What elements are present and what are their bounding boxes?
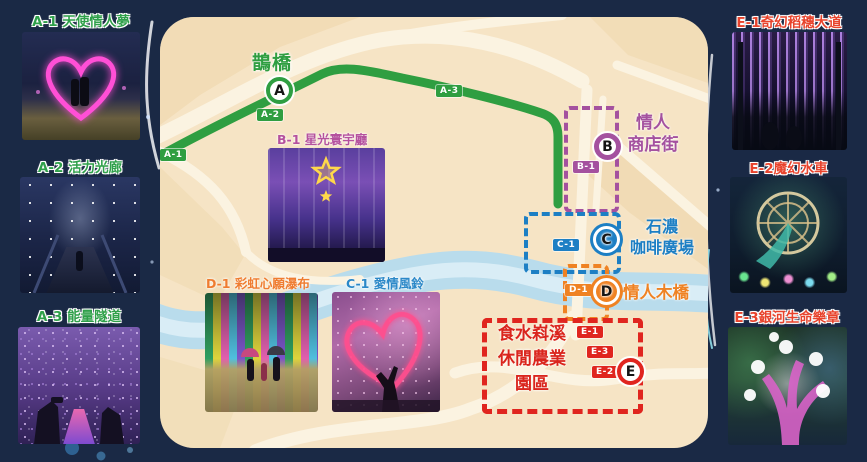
star-icon <box>314 159 339 182</box>
festival-map: 鵲橋 情人 商店街 石濃 咖啡廣場 情人木橋 食水嵙溪 休閒農業 園區 A-1 … <box>160 17 708 448</box>
bridge-name-label: 鵲橋 <box>252 48 292 75</box>
route-badge-a2: A-2 <box>257 109 283 121</box>
attraction-label-e1: E-1奇幻稻穗大道 <box>728 11 850 31</box>
sparkle-dot <box>716 188 719 191</box>
photographer-silhouette <box>100 407 124 444</box>
bokeh-dot <box>127 447 133 453</box>
area-label-line: 商店街 <box>615 134 691 156</box>
area-label-line: 石濃 <box>620 216 704 237</box>
light-corridor-art <box>20 177 140 293</box>
area-label-coffee-plaza: 石濃 咖啡廣場 <box>620 216 704 258</box>
starlight-hall-art <box>268 148 385 262</box>
person-silhouette <box>247 359 254 381</box>
camera-icon <box>51 397 63 403</box>
person-silhouette <box>80 77 89 106</box>
area-label-shop-street: 情人 商店街 <box>615 112 691 157</box>
spot-badge-d1: D-1 <box>565 284 592 296</box>
attraction-label-e2: E-2魔幻水車 <box>730 157 847 177</box>
photo-e3-galaxy-life-tree <box>728 327 847 445</box>
attraction-label-a1: A-1 天使情人夢 <box>22 10 140 30</box>
map-photo-label-d1: D-1 彩虹心願瀑布 <box>206 273 310 292</box>
crowd-silhouette <box>268 248 385 262</box>
area-label-line: 園區 <box>486 372 578 397</box>
star-icon-small <box>320 190 332 202</box>
light-dot <box>122 86 126 90</box>
area-label-farm-zone: 食水嵙溪 休閒農業 園區 <box>486 322 578 397</box>
heart-arch-art <box>22 32 140 140</box>
map-photo-d1-rainbow-waterfall <box>205 293 318 412</box>
marker-b: B <box>594 133 621 160</box>
person-silhouette <box>76 251 83 271</box>
map-photo-label-b1: B-1 星光寰宇廳 <box>277 129 367 148</box>
rainbow-waterfall-art <box>205 293 318 412</box>
photo-e2-magic-waterwheel <box>730 177 847 293</box>
map-photo-c1-love-windchimes <box>332 292 440 412</box>
person-silhouette <box>761 122 779 150</box>
map-photo-b1-starlight-hall <box>268 148 385 262</box>
area-label-line: 情人 <box>615 112 691 134</box>
area-label-line: 咖啡廣場 <box>620 237 704 258</box>
hanging-lights-art <box>732 32 847 150</box>
marker-d: D <box>593 278 620 305</box>
area-label-line: 休閒農業 <box>486 347 578 372</box>
tunnel-art <box>18 327 140 444</box>
ground-shadow <box>332 400 440 412</box>
area-label-line: 食水嵙溪 <box>486 322 578 347</box>
marker-e: E <box>617 358 644 385</box>
pole <box>738 42 743 150</box>
route-badge-a3: A-3 <box>436 85 462 97</box>
sparkle-dot <box>146 115 150 119</box>
slide-shape <box>756 223 792 269</box>
marker-c: C <box>593 226 620 253</box>
spot-badge-b1: B-1 <box>573 161 599 173</box>
spot-badge-e1: E-1 <box>577 326 603 338</box>
photographer-silhouette <box>34 401 60 444</box>
photo-a2-vitality-light-corridor <box>20 177 140 293</box>
marker-a: A <box>266 77 293 104</box>
photo-a3-energy-tunnel <box>18 327 140 444</box>
bokeh-dot <box>97 452 106 461</box>
umbrella-icon <box>267 346 285 355</box>
map-photo-label-c1: C-1 愛情風鈴 <box>346 273 424 292</box>
person-silhouette <box>273 357 280 381</box>
light-streak <box>147 22 159 168</box>
umbrella-icon <box>241 348 259 357</box>
area-label-wooden-bridge: 情人木橋 <box>623 282 689 304</box>
photo-a1-angel-lovers-dream <box>22 32 140 140</box>
spot-badge-e3: E-3 <box>587 346 613 358</box>
love-windchime-art <box>332 292 440 412</box>
person-silhouette <box>71 79 79 106</box>
light-dot <box>36 90 40 94</box>
person-silhouette <box>786 126 802 150</box>
glowing-tree-art <box>728 327 847 445</box>
waterwheel-art <box>730 177 847 293</box>
route-badge-a1: A-1 <box>160 149 186 161</box>
person-silhouette <box>261 363 267 381</box>
spot-badge-c1: C-1 <box>553 239 579 251</box>
pole <box>836 42 841 150</box>
photo-e1-fantasy-rice-avenue <box>732 32 847 150</box>
glow-orbs <box>744 332 830 401</box>
tree-trunk <box>762 360 828 445</box>
spot-badge-e2: E-2 <box>592 366 618 378</box>
attraction-label-a2: A-2 活力光廊 <box>20 156 140 176</box>
festival-map-poster: A-1 天使情人夢 A-2 活力光廊 A-3 能量隧道 E-1奇幻稻穗大道 <box>0 0 867 462</box>
attraction-label-a3: A-3 能量隧道 <box>18 305 140 325</box>
sparkle-dot <box>150 260 153 263</box>
attraction-label-e3: E-3銀河生命樂章 <box>726 306 848 326</box>
